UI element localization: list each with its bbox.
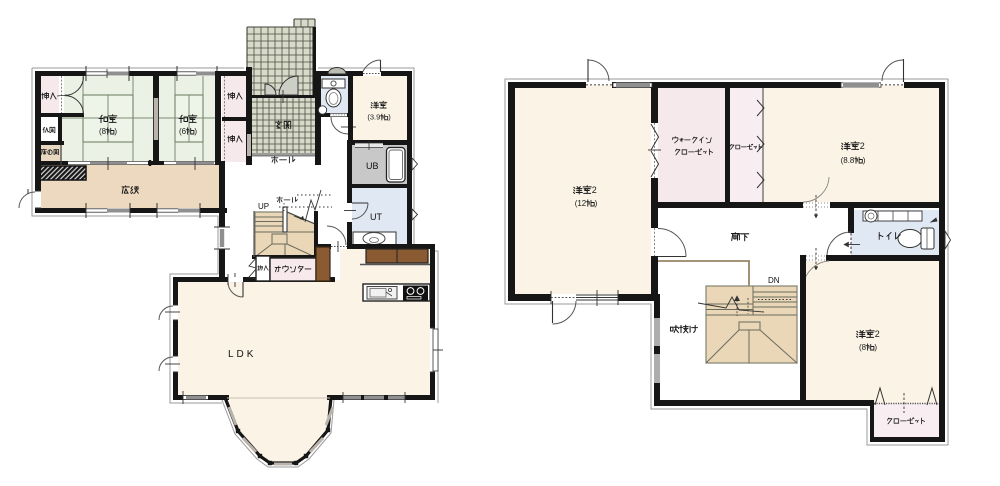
svg-text:UT: UT (370, 212, 382, 222)
svg-text:2: 2 (875, 329, 880, 339)
svg-text:): ) (114, 127, 117, 136)
svg-text:(8: (8 (99, 127, 107, 136)
svg-text:DN: DN (768, 276, 780, 285)
svg-text:(8: (8 (859, 343, 867, 352)
svg-text:2: 2 (592, 185, 597, 195)
svg-text:(12: (12 (575, 199, 587, 208)
svg-text:UP: UP (258, 202, 269, 211)
svg-text:UB: UB (366, 161, 379, 171)
svg-text:): ) (874, 343, 877, 352)
svg-text:(6: (6 (179, 127, 187, 136)
svg-text:): ) (194, 127, 197, 136)
svg-text:2: 2 (860, 141, 865, 151)
svg-text:(8.8: (8.8 (841, 156, 855, 165)
svg-text:LDK: LDK (228, 349, 256, 360)
svg-text:): ) (863, 156, 866, 165)
svg-text:(3.9: (3.9 (367, 113, 380, 122)
svg-text:): ) (595, 199, 598, 208)
